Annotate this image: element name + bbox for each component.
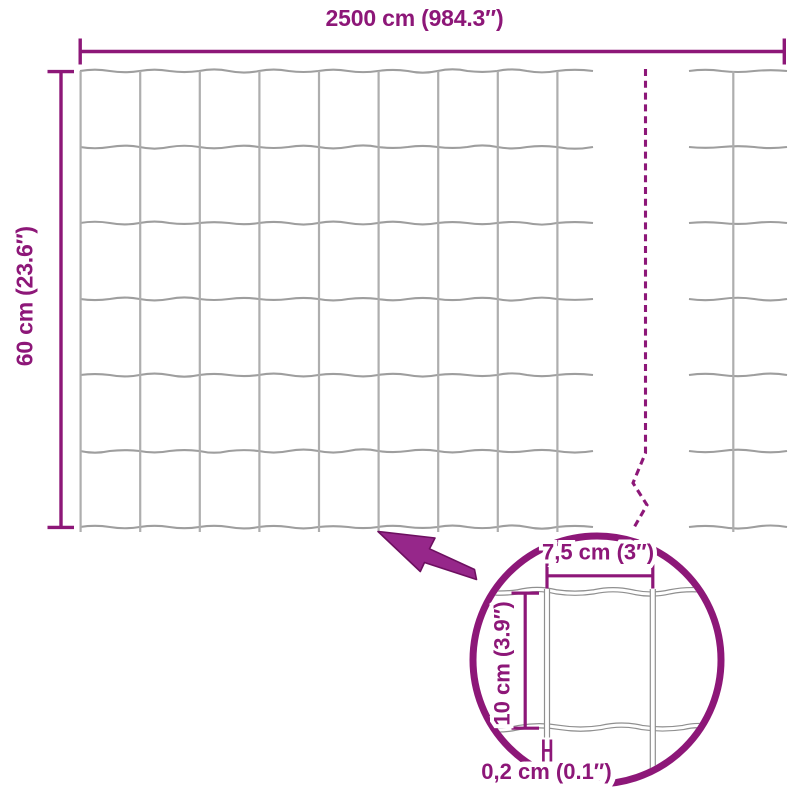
svg-text:0,2 cm (0.1″): 0,2 cm (0.1″) xyxy=(481,759,611,784)
svg-text:60 cm (23.6″): 60 cm (23.6″) xyxy=(11,226,37,366)
svg-text:10 cm (3.9″): 10 cm (3.9″) xyxy=(490,601,515,725)
svg-text:7,5 cm (3″): 7,5 cm (3″) xyxy=(542,540,654,565)
svg-text:2500 cm (984.3″): 2500 cm (984.3″) xyxy=(326,5,504,31)
